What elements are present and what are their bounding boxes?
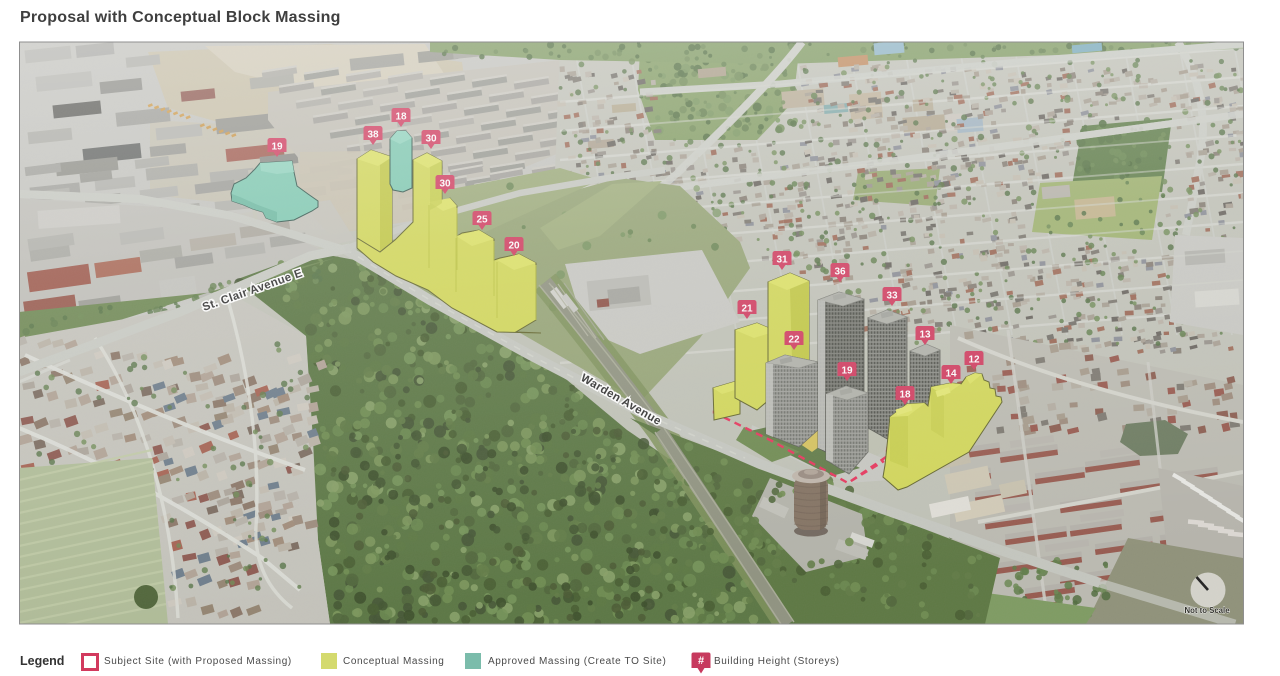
svg-text:#: # <box>698 655 704 667</box>
